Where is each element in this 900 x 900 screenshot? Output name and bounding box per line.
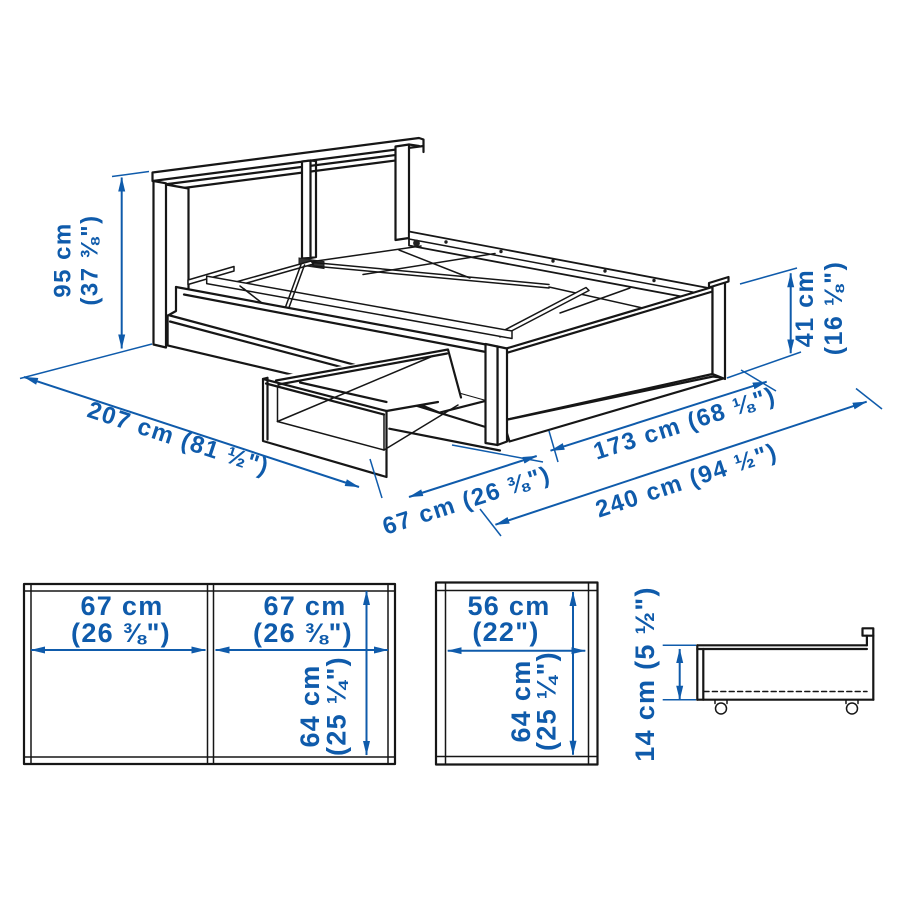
svg-text:(25 ¼"): (25 ¼") — [322, 656, 352, 756]
svg-text:(26 ⅜"): (26 ⅜") — [253, 618, 353, 648]
svg-text:41 cm: 41 cm — [791, 269, 819, 347]
svg-text:64 cm: 64 cm — [295, 664, 325, 747]
svg-text:67 cm: 67 cm — [80, 591, 163, 621]
svg-text:(26 ⅜"): (26 ⅜") — [71, 618, 171, 648]
svg-text:(25 ¼"): (25 ¼") — [532, 651, 562, 751]
svg-text:(22"): (22") — [472, 617, 539, 647]
svg-text:14 cm (5 ½"): 14 cm (5 ½") — [630, 586, 660, 761]
svg-text:67 cm: 67 cm — [263, 591, 346, 621]
svg-text:(37 ⅜"): (37 ⅜") — [77, 214, 104, 305]
svg-text:(16 ⅛"): (16 ⅛") — [820, 261, 848, 356]
svg-text:95 cm: 95 cm — [50, 222, 77, 298]
